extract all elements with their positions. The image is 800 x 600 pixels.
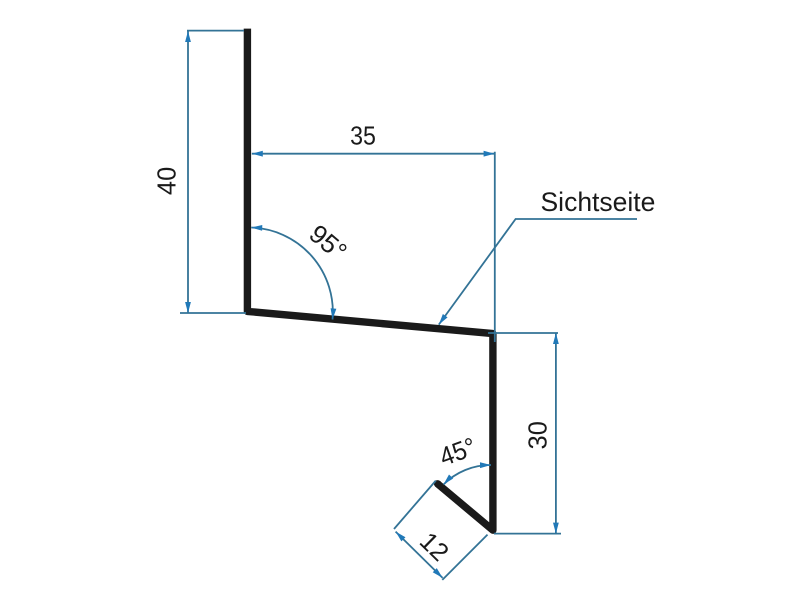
svg-text:30: 30 (525, 421, 553, 449)
svg-text:Sichtseite: Sichtseite (541, 187, 656, 217)
svg-text:35: 35 (350, 122, 376, 150)
svg-text:40: 40 (153, 167, 181, 195)
